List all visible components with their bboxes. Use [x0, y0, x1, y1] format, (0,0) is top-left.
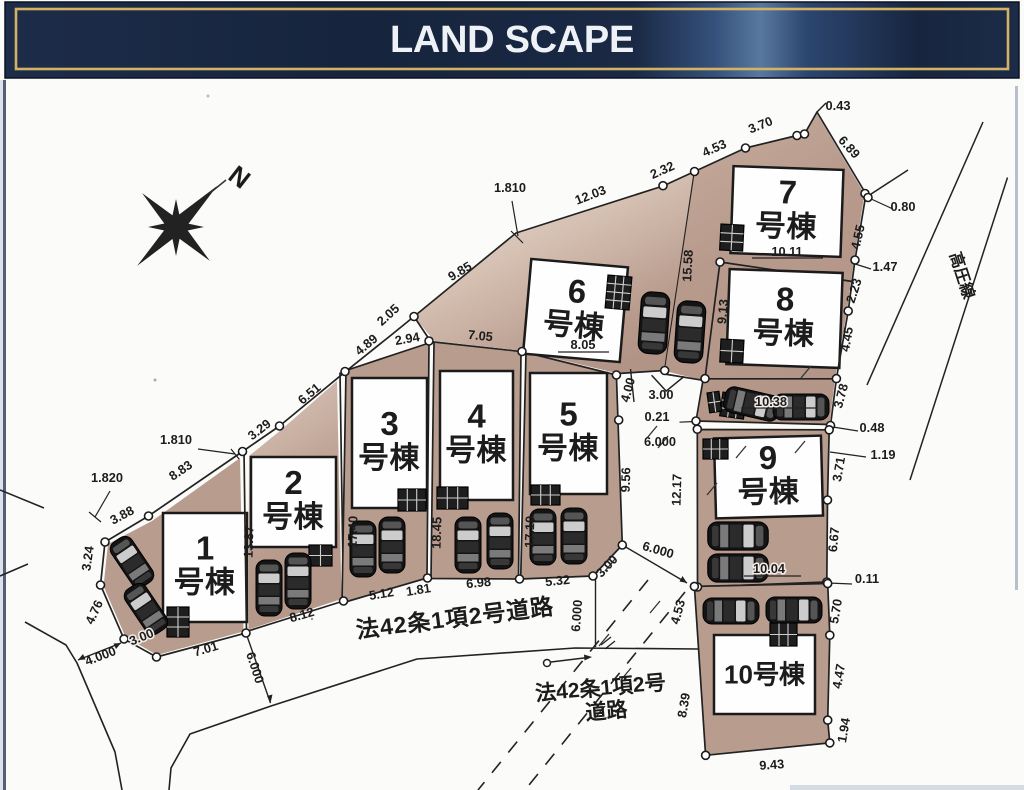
svg-text:1.19: 1.19	[871, 447, 896, 462]
svg-text:0.21: 0.21	[645, 409, 670, 424]
svg-text:2: 2	[284, 464, 302, 501]
svg-text:15.58: 15.58	[679, 249, 696, 282]
svg-text:9.43: 9.43	[759, 756, 785, 773]
svg-text:6: 6	[566, 272, 588, 310]
svg-text:0.80: 0.80	[891, 199, 916, 214]
svg-text:10.04: 10.04	[753, 561, 786, 576]
svg-text:1.47: 1.47	[873, 259, 898, 274]
svg-text:17.40: 17.40	[344, 516, 360, 549]
svg-text:5: 5	[559, 396, 577, 433]
svg-text:3.00: 3.00	[649, 387, 674, 402]
svg-text:号棟: 号棟	[737, 475, 800, 510]
svg-text:0.11: 0.11	[855, 571, 879, 586]
svg-text:1: 1	[196, 530, 214, 567]
svg-text:1.820: 1.820	[91, 470, 123, 485]
svg-text:6.000: 6.000	[568, 599, 585, 632]
svg-text:9: 9	[758, 439, 777, 476]
svg-text:5.32: 5.32	[544, 572, 570, 590]
svg-text:8.05: 8.05	[571, 337, 596, 352]
svg-text:6.98: 6.98	[465, 574, 491, 592]
svg-text:号棟: 号棟	[359, 442, 421, 475]
svg-text:13.87: 13.87	[240, 526, 256, 559]
svg-text:1.810: 1.810	[160, 432, 192, 447]
svg-text:号棟: 号棟	[538, 433, 600, 466]
svg-text:7.05: 7.05	[467, 327, 493, 345]
svg-text:17.10: 17.10	[521, 516, 537, 549]
svg-text:号棟: 号棟	[446, 435, 508, 468]
svg-text:0.48: 0.48	[860, 420, 885, 435]
svg-text:号棟: 号棟	[752, 316, 815, 351]
svg-text:号棟: 号棟	[755, 209, 818, 244]
svg-text:LAND SCAPE: LAND SCAPE	[390, 19, 634, 61]
svg-text:7: 7	[778, 173, 798, 211]
svg-text:6.000: 6.000	[644, 434, 676, 449]
svg-text:12.17: 12.17	[668, 474, 684, 507]
svg-text:号棟: 号棟	[263, 501, 325, 534]
svg-text:18.45: 18.45	[428, 517, 444, 550]
svg-text:9.56: 9.56	[618, 467, 634, 492]
svg-text:3: 3	[380, 405, 398, 442]
svg-text:道路: 道路	[584, 697, 629, 725]
svg-text:8: 8	[775, 280, 795, 318]
svg-text:10.38: 10.38	[755, 394, 787, 409]
svg-text:10.11: 10.11	[771, 244, 802, 259]
svg-text:0.43: 0.43	[826, 98, 851, 113]
svg-text:9.13: 9.13	[714, 299, 731, 325]
svg-text:1.810: 1.810	[494, 180, 526, 195]
svg-text:号棟: 号棟	[174, 567, 236, 600]
svg-text:6.67: 6.67	[825, 527, 842, 553]
svg-text:10号棟: 10号棟	[724, 660, 806, 690]
svg-text:4: 4	[467, 398, 486, 435]
